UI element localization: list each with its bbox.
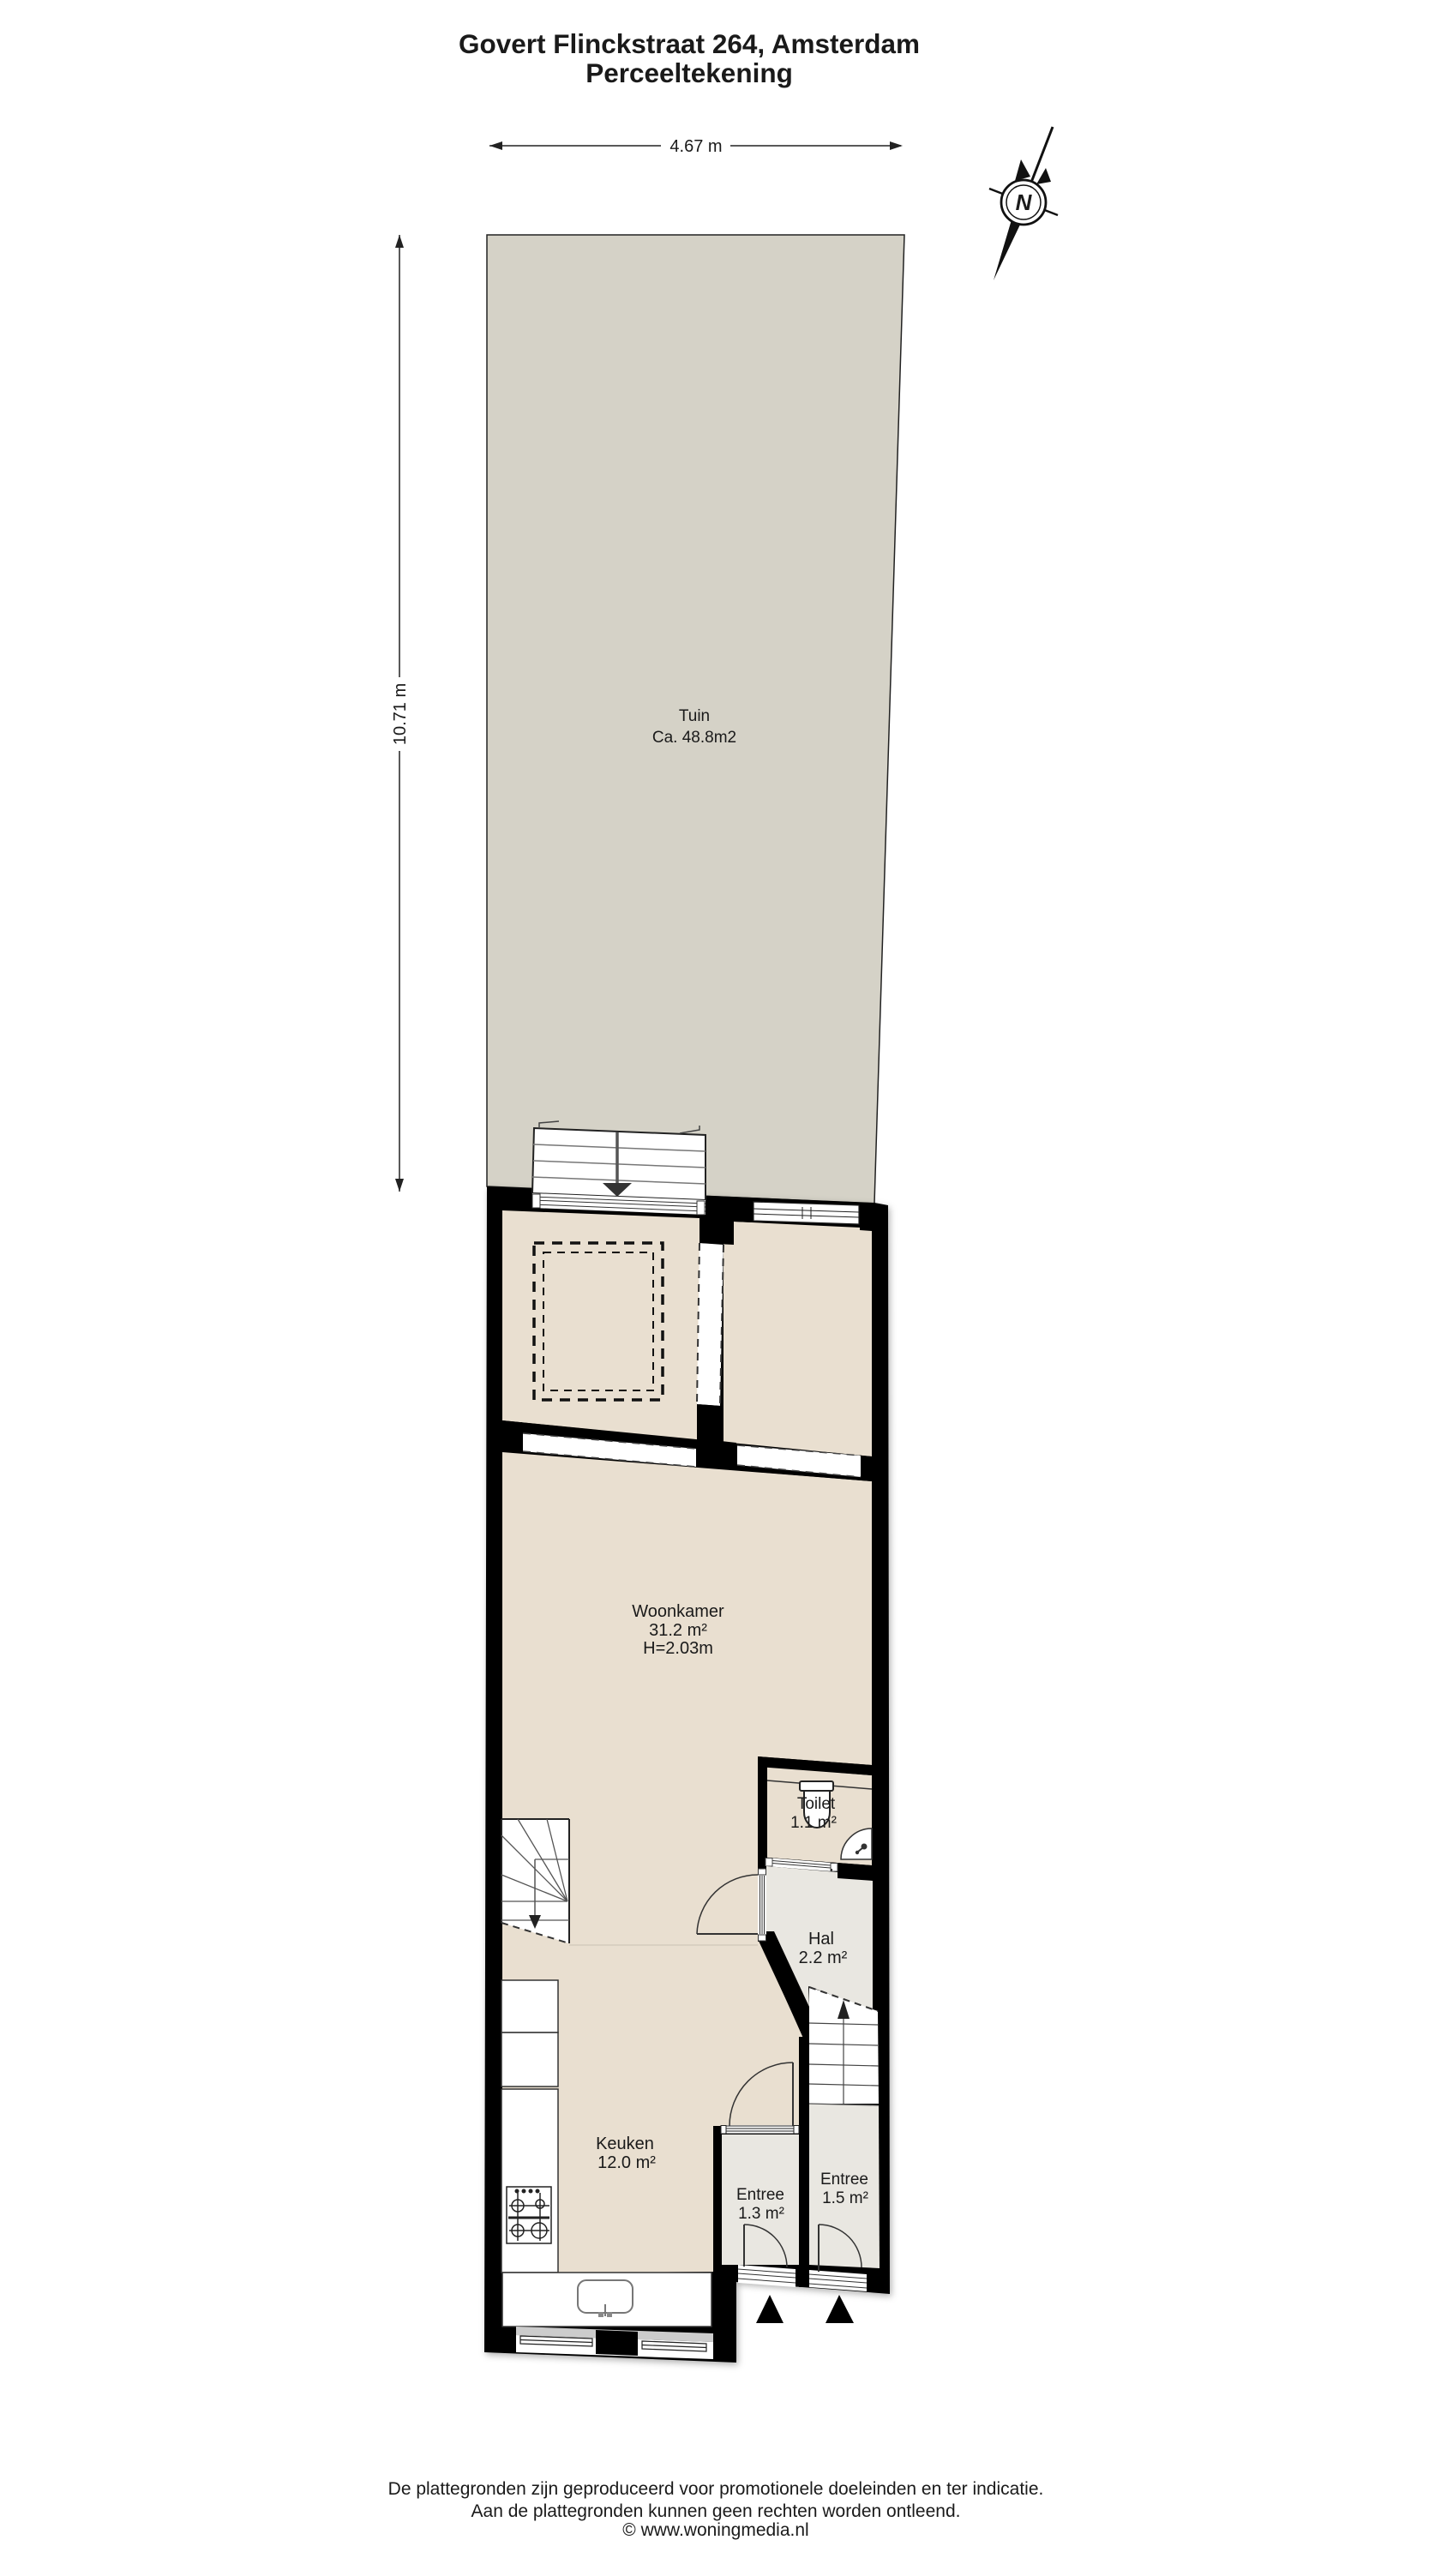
svg-text:Entree: Entree <box>736 2186 784 2204</box>
svg-text:Woonkamer: Woonkamer <box>632 1602 724 1621</box>
svg-text:Perceeltekening: Perceeltekening <box>585 57 793 88</box>
svg-text:Tuin: Tuin <box>679 707 710 725</box>
svg-text:Toilet: Toilet <box>797 1795 836 1813</box>
svg-text:1.3 m²: 1.3 m² <box>738 2205 784 2223</box>
svg-text:Govert Flinckstraat 264, Amste: Govert Flinckstraat 264, Amsterdam <box>459 28 920 59</box>
svg-text:2.2 m²: 2.2 m² <box>799 1949 848 1967</box>
svg-text:1.5 m²: 1.5 m² <box>822 2189 868 2207</box>
svg-text:Ca. 48.8m2: Ca. 48.8m2 <box>652 729 736 747</box>
svg-text:De plattegronden zijn geproduc: De plattegronden zijn geproduceerd voor … <box>388 2479 1044 2499</box>
svg-text:31.2 m²: 31.2 m² <box>649 1621 707 1640</box>
svg-text:H=2.03m: H=2.03m <box>643 1639 713 1658</box>
svg-text:10.71 m: 10.71 m <box>391 683 410 745</box>
svg-text:1.1 m²: 1.1 m² <box>790 1814 837 1832</box>
svg-text:Entree: Entree <box>820 2171 868 2189</box>
svg-text:© www.woningmedia.nl: © www.woningmedia.nl <box>622 2520 808 2540</box>
svg-text:N: N <box>1016 189 1033 215</box>
svg-text:4.67 m: 4.67 m <box>669 137 722 156</box>
svg-text:Keuken: Keuken <box>596 2135 654 2153</box>
svg-text:Hal: Hal <box>808 1930 834 1949</box>
svg-text:12.0 m²: 12.0 m² <box>597 2153 656 2172</box>
svg-text:Aan de plattegronden kunnen ge: Aan de plattegronden kunnen geen rechten… <box>471 2501 961 2521</box>
